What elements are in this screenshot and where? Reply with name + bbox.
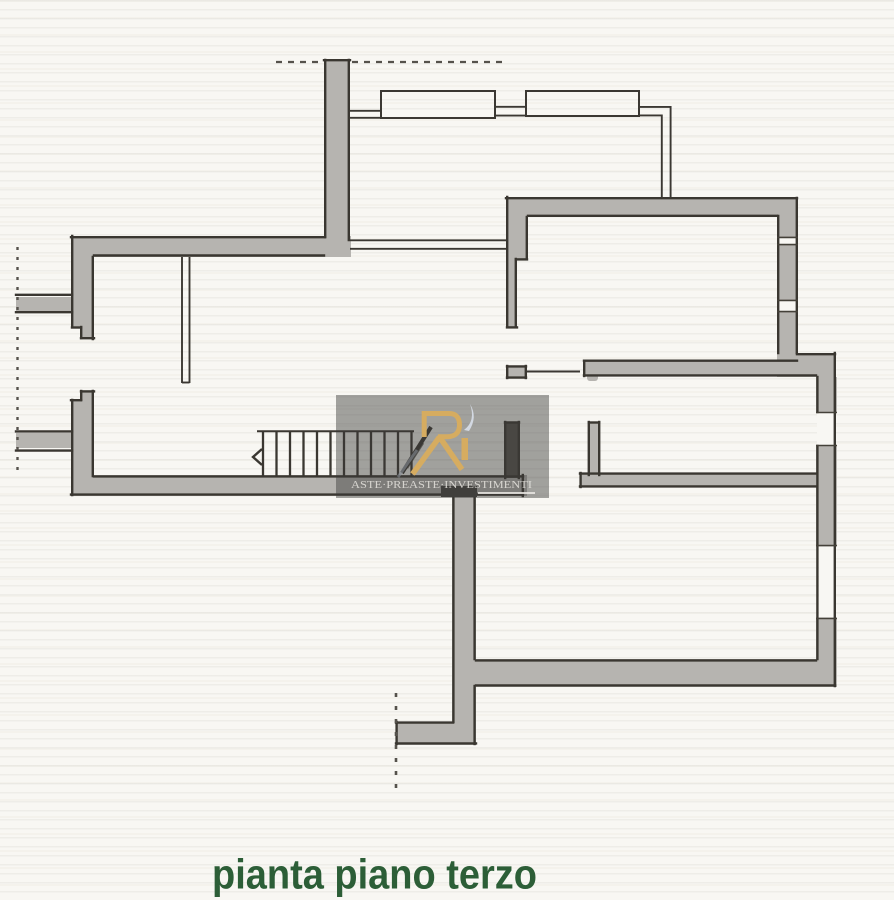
svg-text:ASTE·PREASTE·INVESTIMENTI: ASTE·PREASTE·INVESTIMENTI [351, 480, 533, 491]
svg-text:pianta piano terzo: pianta piano terzo [212, 851, 537, 898]
